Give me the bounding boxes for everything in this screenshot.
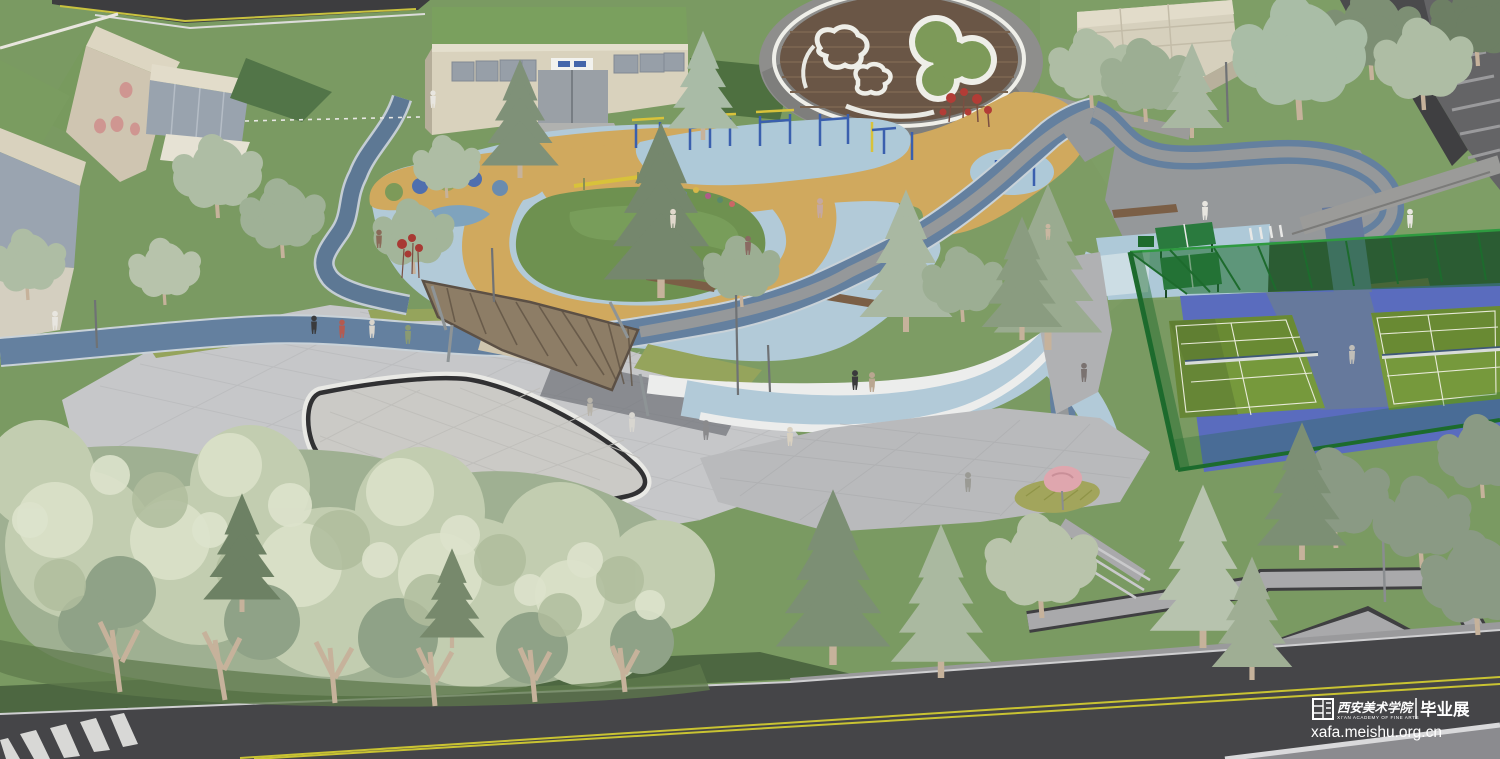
svg-text:毕业展: 毕业展 (1420, 700, 1470, 719)
svg-text:西安美术学院: 西安美术学院 (1337, 701, 1415, 715)
svg-text:xafa.meishu.org.cn: xafa.meishu.org.cn (1311, 724, 1442, 741)
svg-text:XI'AN ACADEMY OF FINE ARTS: XI'AN ACADEMY OF FINE ARTS (1337, 715, 1419, 720)
